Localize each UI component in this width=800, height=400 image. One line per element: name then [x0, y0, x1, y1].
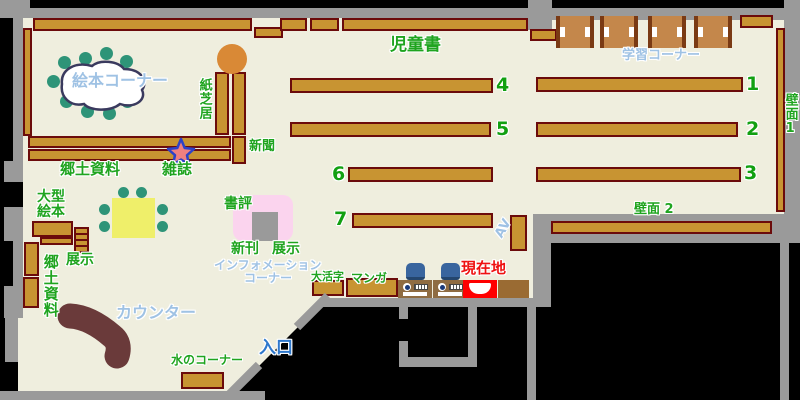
carrel-seat [560, 27, 565, 37]
wall-left [13, 241, 23, 286]
mouse-icon [403, 283, 411, 291]
chair [60, 95, 73, 108]
shelf-zasshi [28, 149, 231, 161]
shelf-top-row [33, 18, 252, 31]
shelf-wall2 [551, 221, 772, 234]
chair [118, 187, 129, 198]
label-ehon-corner: 絵本コーナー [72, 73, 168, 90]
wall-left [4, 286, 23, 318]
label-zasshi: 雑誌 [162, 162, 192, 178]
shelf-shinbun [232, 136, 246, 164]
shelf-kamishibai [215, 72, 229, 135]
vestibule-wall [399, 341, 408, 358]
library-floor-map: 児童書 学習コーナー 絵本コーナー 紙芝居 新聞 雑誌 郷土資料 壁面1 壁面 … [0, 0, 800, 400]
wall-left [5, 318, 18, 362]
label-tenji-left: 展示 [66, 253, 94, 268]
chair [99, 204, 110, 215]
label-kamishibai: 紙芝居 [197, 78, 211, 120]
keyboard-icon [414, 284, 428, 290]
label-tenji-center: 展示 [272, 242, 300, 257]
study-carrel [600, 16, 638, 48]
wall-segment [527, 307, 536, 400]
label-shelf-1: 1 [746, 75, 759, 95]
label-mizu-corner: 水のコーナー [171, 354, 243, 367]
carrel-seat [723, 27, 728, 37]
label-hekimen-1: 壁面1 [783, 93, 797, 137]
shelf-study-right [740, 15, 773, 28]
label-counter: カウンター [116, 305, 196, 322]
label-shelf-5: 5 [496, 120, 509, 140]
chair [81, 105, 94, 118]
label-daikatsuji: 大活字 [311, 271, 344, 283]
label-shelf-2: 2 [746, 120, 759, 140]
label-ogata-ehon-1: 大型 [37, 190, 65, 205]
shelf-3 [536, 167, 741, 182]
shelf-kyodo [24, 242, 39, 276]
vestibule-wall [399, 307, 408, 319]
shelf-ogata-ehon [32, 221, 73, 237]
carrel-seat [677, 27, 682, 37]
chair [99, 221, 110, 232]
shelf-zasshi [28, 136, 231, 148]
chair [136, 187, 147, 198]
wall-segment [780, 243, 789, 400]
chair [157, 221, 168, 232]
label-shelf-3: 3 [744, 164, 757, 184]
carrel-seat [698, 27, 703, 37]
chair [120, 55, 133, 68]
shelf-mizu-corner [181, 372, 224, 389]
entrance-wall-lower [230, 365, 259, 394]
opac-screen [441, 263, 460, 280]
opac-screen [406, 263, 425, 280]
label-kyodo-shiryo-top: 郷土資料 [60, 162, 120, 178]
label-genzaichi: 現在地 [461, 261, 506, 277]
shelf-kamishibai [232, 72, 246, 135]
shelf-top-row [254, 27, 283, 38]
return-desk [498, 280, 529, 298]
reading-table [112, 198, 155, 238]
shelf-top-row [342, 18, 528, 31]
shelf-study-left [530, 29, 557, 41]
chair [47, 75, 60, 88]
carrel-seat [629, 27, 634, 37]
wall-segment [25, 8, 528, 18]
counter-desk [70, 316, 118, 356]
carrel-seat [652, 27, 657, 37]
label-information-2: コーナー [244, 272, 292, 285]
desk-slot [403, 292, 427, 296]
round-table [217, 44, 247, 74]
wall-left [4, 207, 23, 241]
shelf-6 [348, 167, 493, 182]
shelf-top-row [310, 18, 339, 31]
label-shinbun: 新聞 [249, 140, 275, 154]
shelf-ehon-left [23, 28, 32, 136]
label-shelf-7: 7 [334, 210, 347, 230]
vestibule-wall [468, 307, 477, 367]
chair [157, 204, 168, 215]
shelf-4 [290, 78, 493, 93]
wall-bottom [0, 391, 265, 400]
shelf-top-row [280, 18, 307, 31]
label-ogata-ehon-2: 絵本 [37, 205, 65, 220]
shelf-kyodo [23, 277, 39, 308]
label-shinkan: 新刊 [231, 242, 259, 257]
display-table-gray [252, 212, 278, 241]
mouse-icon [438, 283, 446, 291]
vestibule-wall [399, 357, 477, 367]
label-information-1: インフォメーション [214, 259, 321, 272]
chair [103, 107, 116, 120]
shelf-tenji [74, 227, 89, 253]
keyboard-icon [449, 284, 463, 290]
chair [79, 52, 92, 65]
current-location-marker [463, 280, 497, 298]
opac-terminal [433, 280, 467, 298]
carrel-seat [585, 27, 590, 37]
label-manga: マンガ [351, 272, 387, 285]
shelf-av [510, 215, 527, 251]
wall-left [13, 18, 23, 163]
label-kyodo-shiryo-left: 郷土資料 [42, 254, 58, 318]
label-shohyo: 書評 [224, 197, 252, 212]
shelf-7 [352, 213, 493, 228]
label-iriguchi: 入口 [259, 340, 293, 358]
chair [100, 47, 113, 60]
opac-terminal [398, 280, 432, 298]
carrel-seat [604, 27, 609, 37]
desk-slot [438, 292, 462, 296]
chair [121, 95, 134, 108]
label-hekimen-2: 壁面 2 [634, 203, 674, 217]
chair [58, 56, 71, 69]
label-shelf-6: 6 [332, 165, 345, 185]
shelf-2 [536, 122, 738, 137]
wall-left [4, 161, 23, 182]
shelf-ogata-ehon-low [40, 237, 73, 245]
study-carrel [648, 16, 686, 48]
shelf-5 [290, 122, 491, 137]
current-location-bowl [469, 283, 491, 294]
shelf-1 [536, 77, 743, 92]
wall-pillar [528, 0, 552, 30]
label-jidosho: 児童書 [390, 37, 441, 55]
label-gakushu-corner: 学習コーナー [622, 49, 700, 63]
label-shelf-4: 4 [496, 76, 509, 96]
study-carrel [556, 16, 594, 48]
wall-segment [323, 298, 551, 307]
study-carrel [694, 16, 732, 48]
